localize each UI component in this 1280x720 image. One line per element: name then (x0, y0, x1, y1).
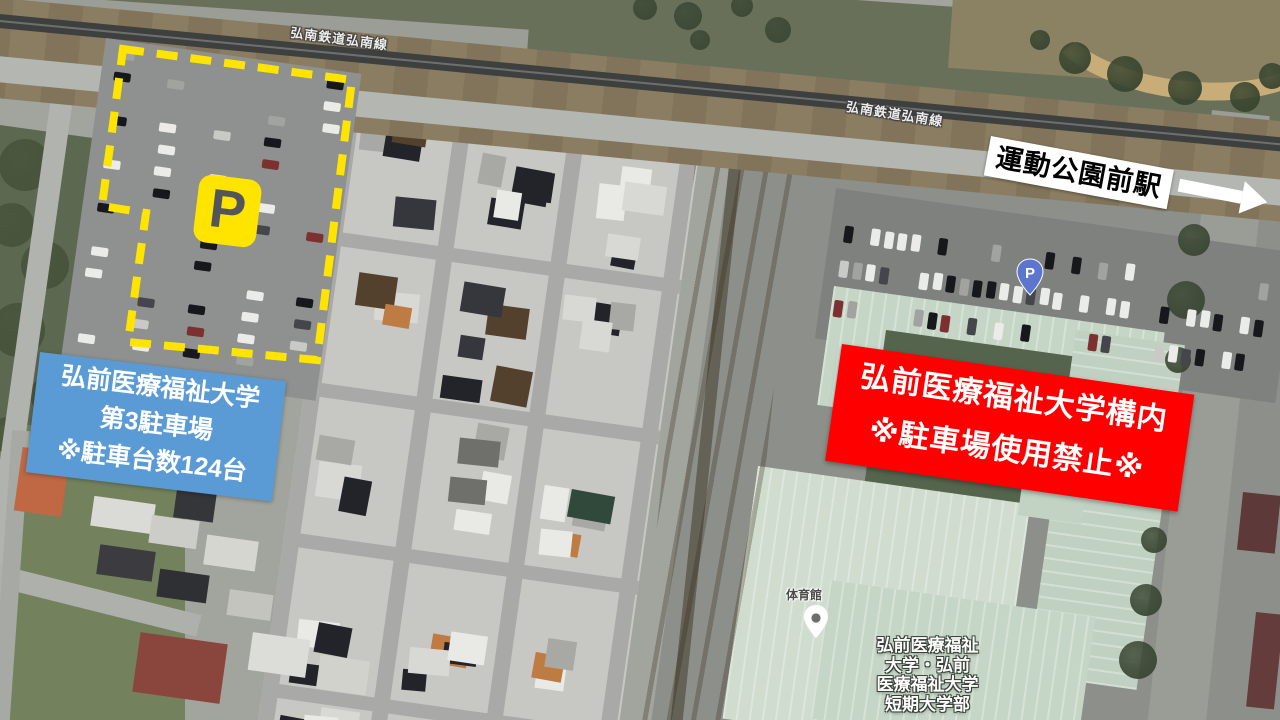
car (918, 273, 929, 291)
building (447, 631, 487, 666)
car (1105, 298, 1116, 316)
car (990, 245, 1001, 263)
car (264, 137, 282, 148)
campus-name-label: 弘前医療福祉 大学・弘前 医療福祉大学 短期大学部 (850, 636, 1005, 714)
car (937, 238, 948, 256)
tree (1168, 71, 1202, 105)
car (167, 79, 185, 90)
car (998, 283, 1009, 301)
car (878, 267, 889, 285)
car (1044, 252, 1055, 270)
car (85, 267, 103, 278)
car (1012, 285, 1023, 303)
terrain-layer (0, 0, 1280, 720)
car (97, 202, 115, 213)
car (958, 278, 969, 296)
car (159, 122, 177, 133)
car (1180, 348, 1191, 366)
car (235, 355, 253, 366)
car (186, 326, 204, 337)
car (1252, 320, 1263, 338)
car (1079, 294, 1090, 312)
building (477, 153, 506, 188)
car (153, 188, 171, 199)
campus-name-line: 医療福祉大学 (850, 675, 1005, 695)
building (538, 529, 573, 558)
car (1124, 263, 1135, 281)
car (91, 246, 109, 257)
campus-name-line: 弘前医療福祉 (850, 636, 1005, 656)
tree (1230, 82, 1260, 112)
car (1199, 310, 1210, 328)
car (153, 166, 171, 177)
car (296, 297, 314, 308)
gym-label: 体育館 (786, 586, 822, 603)
car (194, 261, 212, 272)
third-parking-marker: P (192, 173, 263, 248)
car (188, 304, 206, 315)
building (579, 319, 612, 353)
car (926, 312, 937, 330)
car (103, 159, 121, 170)
car (1194, 349, 1205, 367)
car (945, 276, 956, 294)
car (1052, 292, 1063, 310)
car (851, 262, 862, 280)
tree (1119, 641, 1157, 679)
car (1167, 345, 1178, 363)
car (913, 310, 924, 328)
car (966, 317, 977, 335)
car (1100, 335, 1111, 353)
street (283, 531, 639, 595)
car (117, 50, 135, 61)
building (382, 303, 412, 329)
car (1070, 257, 1081, 275)
car (846, 300, 857, 318)
car (932, 273, 943, 291)
building (621, 182, 666, 217)
car (326, 79, 344, 90)
car (1119, 300, 1130, 318)
building (605, 233, 641, 260)
car (131, 318, 149, 329)
car (268, 115, 286, 126)
building (454, 509, 493, 535)
car (137, 297, 155, 308)
car (1239, 317, 1250, 335)
building (407, 647, 450, 676)
building (248, 632, 311, 678)
car (293, 319, 311, 330)
tree (1141, 527, 1167, 553)
building (448, 476, 487, 505)
car (246, 290, 264, 301)
car (158, 144, 176, 155)
building (339, 476, 373, 515)
car (1020, 324, 1031, 342)
building (132, 632, 227, 704)
car (939, 315, 950, 333)
building (316, 655, 370, 696)
building (490, 365, 533, 407)
building (393, 197, 437, 231)
car (838, 260, 849, 278)
building (544, 638, 577, 671)
car (865, 264, 876, 282)
building (440, 374, 483, 402)
car (78, 333, 96, 344)
building (315, 434, 354, 464)
car (1039, 288, 1050, 306)
car (972, 280, 983, 298)
car (261, 159, 279, 170)
car (832, 300, 843, 318)
car (910, 234, 921, 252)
car (1186, 309, 1197, 327)
building (539, 484, 568, 521)
car (113, 71, 131, 82)
car (1097, 262, 1108, 280)
car (322, 123, 340, 134)
tree (1178, 224, 1210, 256)
car (1159, 307, 1170, 325)
car (1221, 351, 1232, 369)
satellite-map[interactable]: 弘南鉄道弘南線 弘南鉄道弘南線 弘前医療福祉 大学・弘前 医療福祉大学 短期大学… (0, 0, 1280, 720)
tree (674, 2, 702, 30)
car (1153, 344, 1164, 362)
building (494, 190, 523, 222)
car (213, 130, 231, 141)
car (109, 115, 127, 126)
car (985, 281, 996, 299)
building (203, 535, 259, 572)
tree (765, 17, 791, 43)
car (870, 228, 881, 246)
car (1025, 287, 1036, 305)
building (609, 302, 637, 332)
car (241, 312, 259, 323)
car (306, 232, 324, 243)
tree (1059, 42, 1091, 74)
building (458, 438, 501, 468)
terrain-patch (1237, 492, 1280, 554)
building (226, 589, 273, 621)
building (562, 294, 596, 323)
building (314, 622, 353, 658)
car (896, 233, 907, 251)
car (993, 322, 1004, 340)
car (132, 341, 150, 352)
tree (1259, 63, 1280, 89)
tree (690, 30, 710, 50)
car (290, 341, 308, 352)
car (843, 225, 854, 243)
car (1087, 333, 1098, 351)
car (237, 333, 255, 344)
car (1212, 314, 1223, 332)
car (883, 231, 894, 249)
car (182, 348, 200, 359)
building (457, 335, 485, 361)
car (1257, 283, 1268, 301)
building (459, 282, 506, 319)
tree (1130, 584, 1162, 616)
car (1234, 354, 1245, 372)
campus-name-line: 大学・弘前 (850, 656, 1005, 676)
tree (1030, 30, 1050, 50)
tree (1107, 56, 1143, 92)
car (323, 101, 341, 112)
campus-name-line: 短期大学部 (850, 695, 1005, 715)
